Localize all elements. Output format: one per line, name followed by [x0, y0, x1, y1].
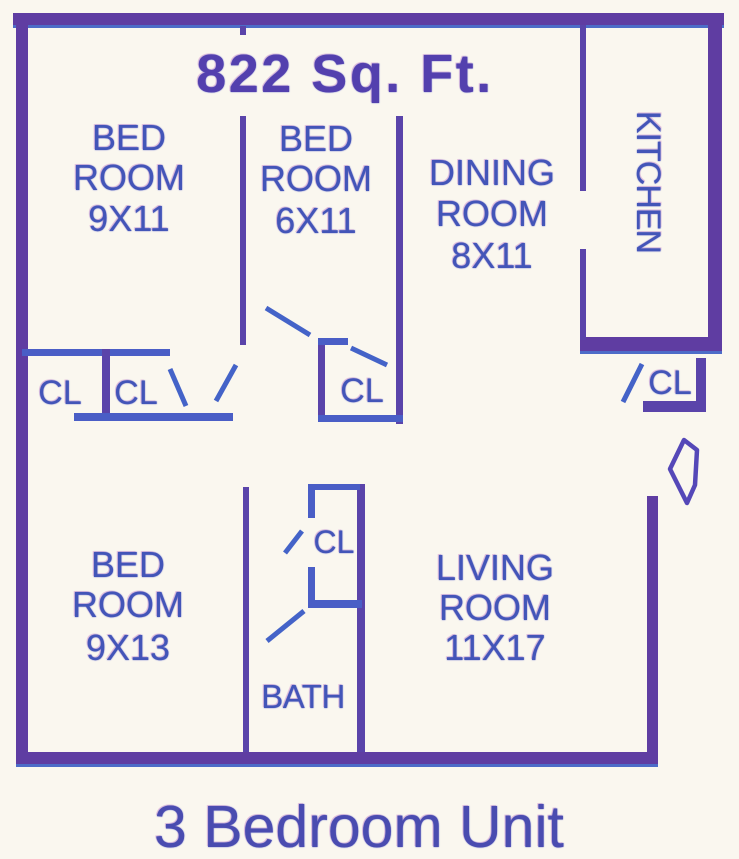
svg-text:822 Sq. Ft.: 822 Sq. Ft.: [196, 44, 494, 104]
svg-text:BATH: BATH: [261, 678, 345, 715]
svg-text:9X13: 9X13: [86, 627, 170, 668]
svg-text:KITCHEN: KITCHEN: [629, 111, 667, 253]
svg-text:ROOM: ROOM: [73, 157, 185, 198]
svg-text:CL: CL: [114, 374, 157, 412]
svg-text:BED: BED: [92, 117, 166, 158]
svg-text:8X11: 8X11: [451, 235, 532, 276]
svg-text:BED: BED: [91, 544, 165, 585]
svg-text:CL: CL: [340, 372, 383, 410]
svg-text:LIVING: LIVING: [436, 547, 554, 588]
svg-text:DINING: DINING: [429, 152, 555, 193]
svg-text:ROOM: ROOM: [436, 193, 548, 234]
svg-text:CL: CL: [314, 524, 355, 560]
svg-text:ROOM: ROOM: [72, 584, 184, 625]
svg-text:ROOM: ROOM: [439, 587, 551, 628]
svg-text:BED: BED: [279, 118, 353, 159]
svg-text:11X17: 11X17: [444, 627, 545, 668]
svg-text:CL: CL: [648, 364, 691, 402]
svg-text:6X11: 6X11: [275, 200, 356, 241]
svg-text:CL: CL: [38, 374, 81, 412]
svg-text:3 Bedroom Unit: 3 Bedroom Unit: [154, 794, 564, 859]
svg-text:ROOM: ROOM: [260, 158, 372, 199]
svg-text:9X11: 9X11: [88, 198, 169, 239]
